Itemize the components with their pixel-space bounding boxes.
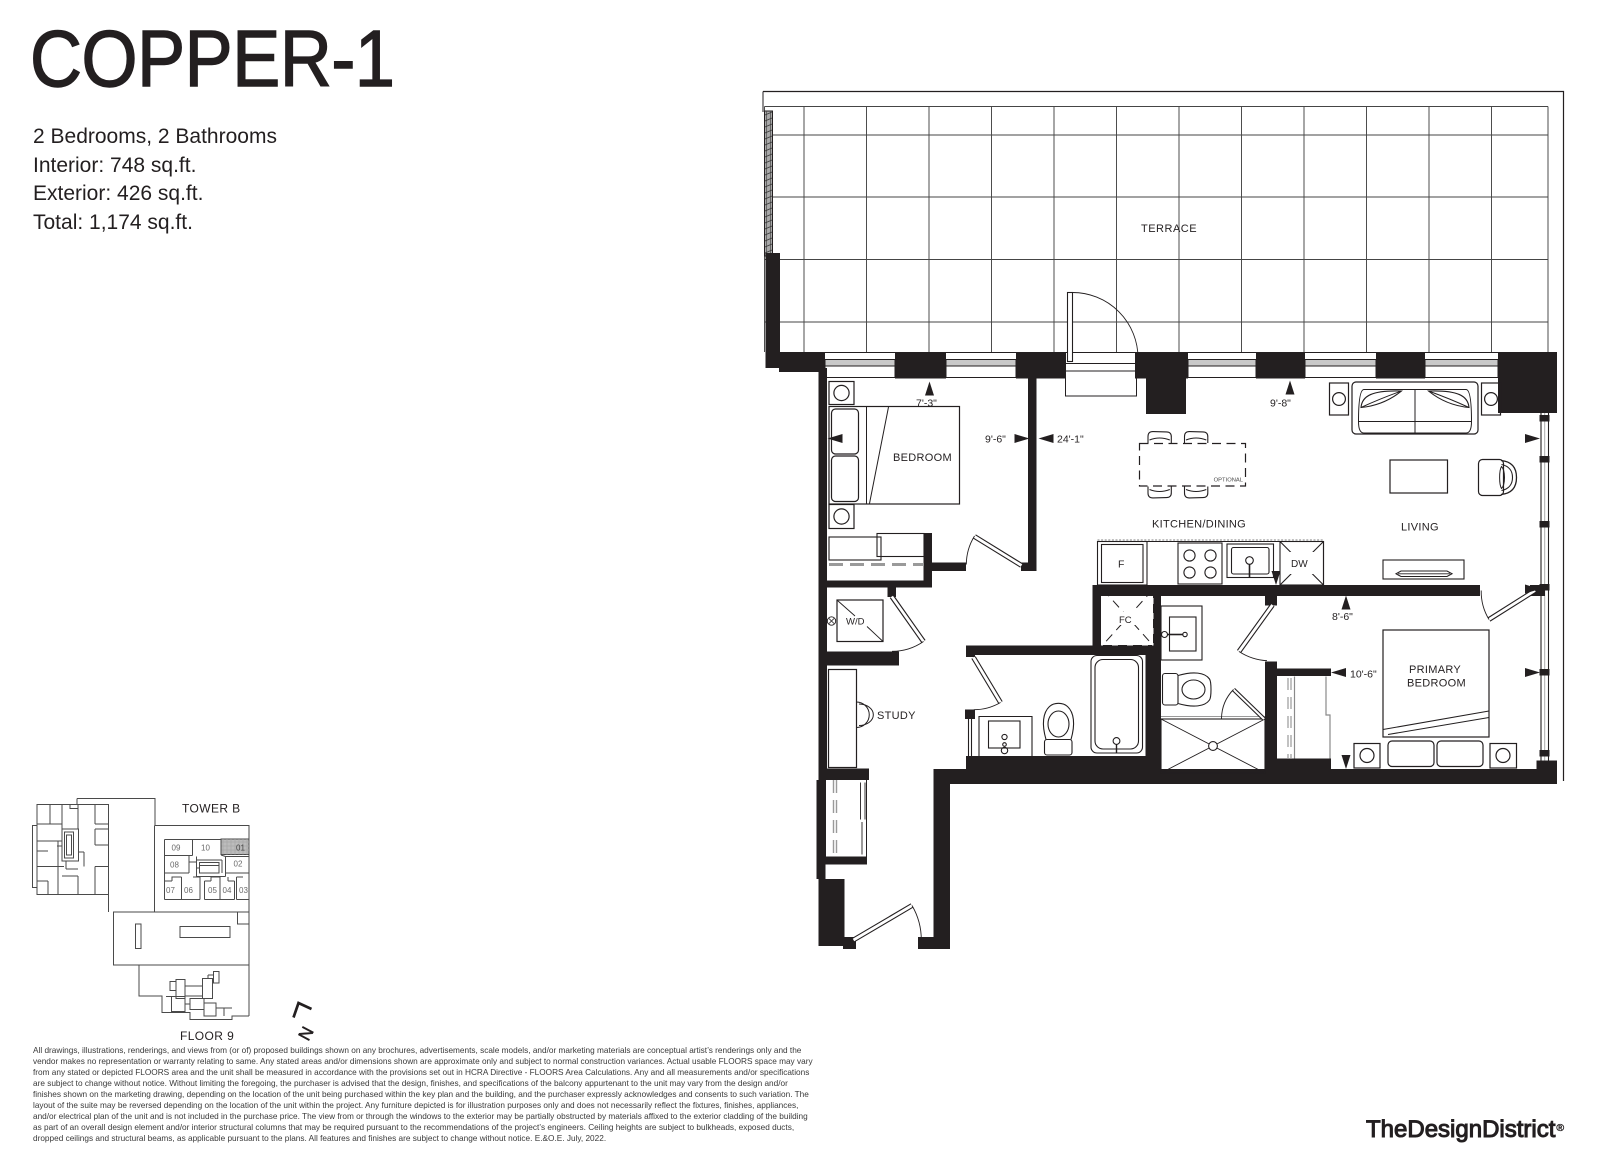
svg-text:LIVING: LIVING <box>1401 522 1439 534</box>
svg-text:03: 03 <box>239 886 248 895</box>
svg-text:10: 10 <box>201 844 210 853</box>
svg-text:9'-6": 9'-6" <box>985 434 1006 446</box>
svg-text:07: 07 <box>166 886 175 895</box>
svg-text:9'-8": 9'-8" <box>1270 398 1291 410</box>
svg-text:TOWER B: TOWER B <box>182 802 241 816</box>
svg-text:06: 06 <box>184 886 193 895</box>
svg-text:BEDROOM: BEDROOM <box>893 452 952 464</box>
svg-text:01: 01 <box>236 844 245 853</box>
svg-text:8'-6": 8'-6" <box>1332 611 1353 623</box>
svg-text:OPTIONAL: OPTIONAL <box>1214 478 1244 484</box>
svg-text:DW: DW <box>1291 559 1308 570</box>
svg-text:N: N <box>294 1023 318 1044</box>
svg-text:BEDROOM: BEDROOM <box>1407 678 1466 690</box>
svg-text:STUDY: STUDY <box>877 710 916 722</box>
svg-text:F: F <box>1118 559 1124 571</box>
svg-text:FC: FC <box>1119 615 1132 626</box>
svg-text:04: 04 <box>223 886 232 895</box>
svg-text:7'-3": 7'-3" <box>916 398 937 410</box>
svg-text:09: 09 <box>172 844 181 853</box>
svg-text:W/D: W/D <box>846 617 865 628</box>
svg-text:FLOOR 9: FLOOR 9 <box>180 1029 234 1043</box>
svg-text:10'-6": 10'-6" <box>1350 669 1377 681</box>
svg-text:KITCHEN/DINING: KITCHEN/DINING <box>1152 519 1246 531</box>
svg-text:PRIMARY: PRIMARY <box>1409 664 1461 676</box>
svg-text:02: 02 <box>234 860 243 869</box>
svg-text:08: 08 <box>170 861 179 870</box>
svg-text:24'-1": 24'-1" <box>1057 434 1084 446</box>
svg-text:05: 05 <box>208 886 217 895</box>
svg-text:TERRACE: TERRACE <box>1141 223 1197 235</box>
